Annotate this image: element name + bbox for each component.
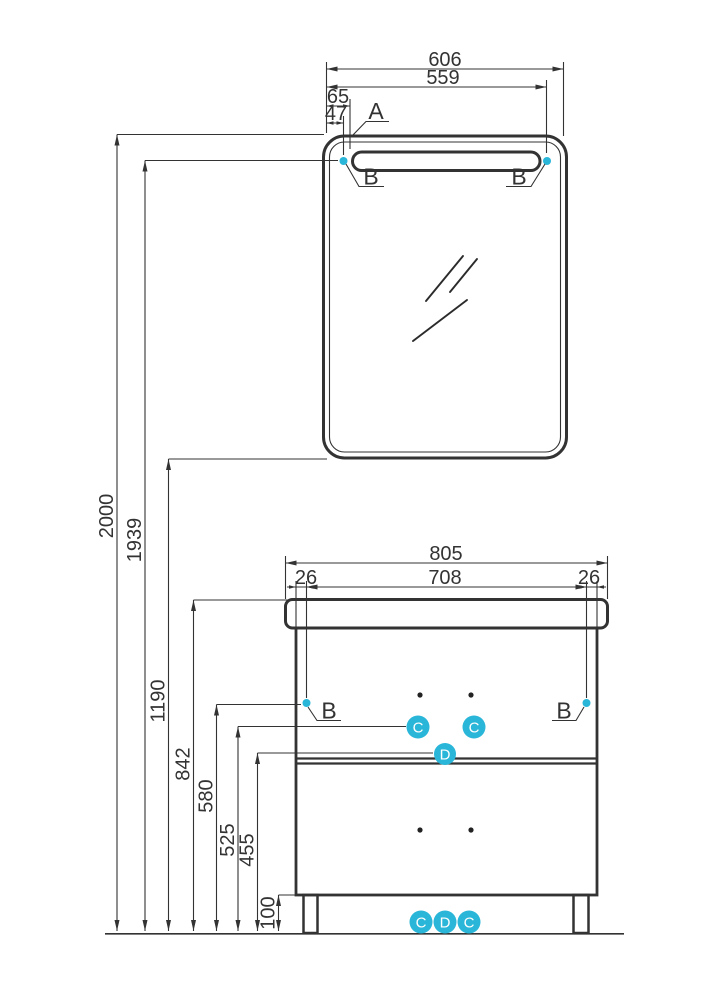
dimension-drawing-svg: A B B 606 559 65 47: [0, 0, 706, 1000]
glass-hatch-line: [413, 300, 467, 341]
mirror-outer-outline: [324, 136, 567, 458]
cabinet-leg-right: [574, 895, 589, 933]
dim-text-fixing-span: 708: [428, 567, 461, 589]
marker-letter-d: D: [440, 747, 451, 764]
marker-letter-c-left: C: [413, 720, 424, 737]
mirror-unit: [324, 136, 567, 458]
dim-text-mirror-bottom-height: 1190: [148, 679, 170, 722]
glass-hatch-line: [426, 256, 463, 301]
mirror-width-dimensions: 606 559 65 47: [325, 49, 564, 155]
vanity-cabinet: [286, 600, 608, 934]
callout-b-right-label: B: [511, 164, 526, 190]
cabinet-callouts: B B C C D C D C: [308, 698, 584, 934]
cabinet-width-dimensions: 805 708 26 26: [286, 543, 608, 698]
mirror-callouts: A B B: [346, 98, 545, 190]
dim-text-mirror-fixing-span: 559: [426, 67, 459, 89]
dim-text-cabinet-width: 805: [429, 543, 462, 565]
dim-text-divider-height: 455: [237, 833, 259, 866]
mirror-fixing-point-left: [340, 157, 348, 165]
handle-dot: [417, 827, 422, 832]
dim-text-countertop-height: 842: [173, 747, 195, 780]
bottom-marker-letter: C: [416, 915, 427, 932]
cabinet-fixing-point-left: [303, 699, 311, 707]
dim-text-edge-to-fixing: 47: [325, 103, 347, 125]
callout-b-left-label: B: [363, 164, 378, 190]
height-dimensions: 2000 1939 1190 842 580 525 455 100: [96, 135, 433, 932]
handle-dot: [468, 692, 473, 697]
dim-text-left-offset: 26: [295, 567, 317, 589]
dim-text-cabinet-fixing-height: 580: [196, 779, 218, 812]
cabinet-leg-left: [304, 895, 318, 933]
marker-letter-c-right: C: [469, 720, 480, 737]
cabinet-callout-b-right: B: [556, 698, 571, 724]
mirror-glass-hatch: [413, 256, 477, 341]
callout-a-label: A: [368, 98, 384, 124]
bottom-marker-letter: C: [464, 915, 475, 932]
bottom-marker-group: C D C: [410, 911, 481, 934]
technical-drawing-canvas: A B B 606 559 65 47: [0, 0, 706, 1000]
cabinet-fixing-point-right: [583, 699, 591, 707]
mirror-fixing-point-right: [543, 157, 551, 165]
handle-dot: [417, 692, 422, 697]
dim-text-plinth-height: 100: [258, 896, 280, 929]
cabinet-callout-b-left: B: [321, 698, 336, 724]
dim-text-light-fixing-height: 1939: [124, 518, 146, 563]
countertop: [286, 600, 608, 629]
dim-text-mirror-top-height: 2000: [96, 494, 118, 539]
dim-text-right-offset: 26: [578, 567, 600, 589]
bottom-marker-letter: D: [440, 915, 451, 932]
glass-hatch-line: [450, 259, 477, 292]
handle-dot: [468, 827, 473, 832]
